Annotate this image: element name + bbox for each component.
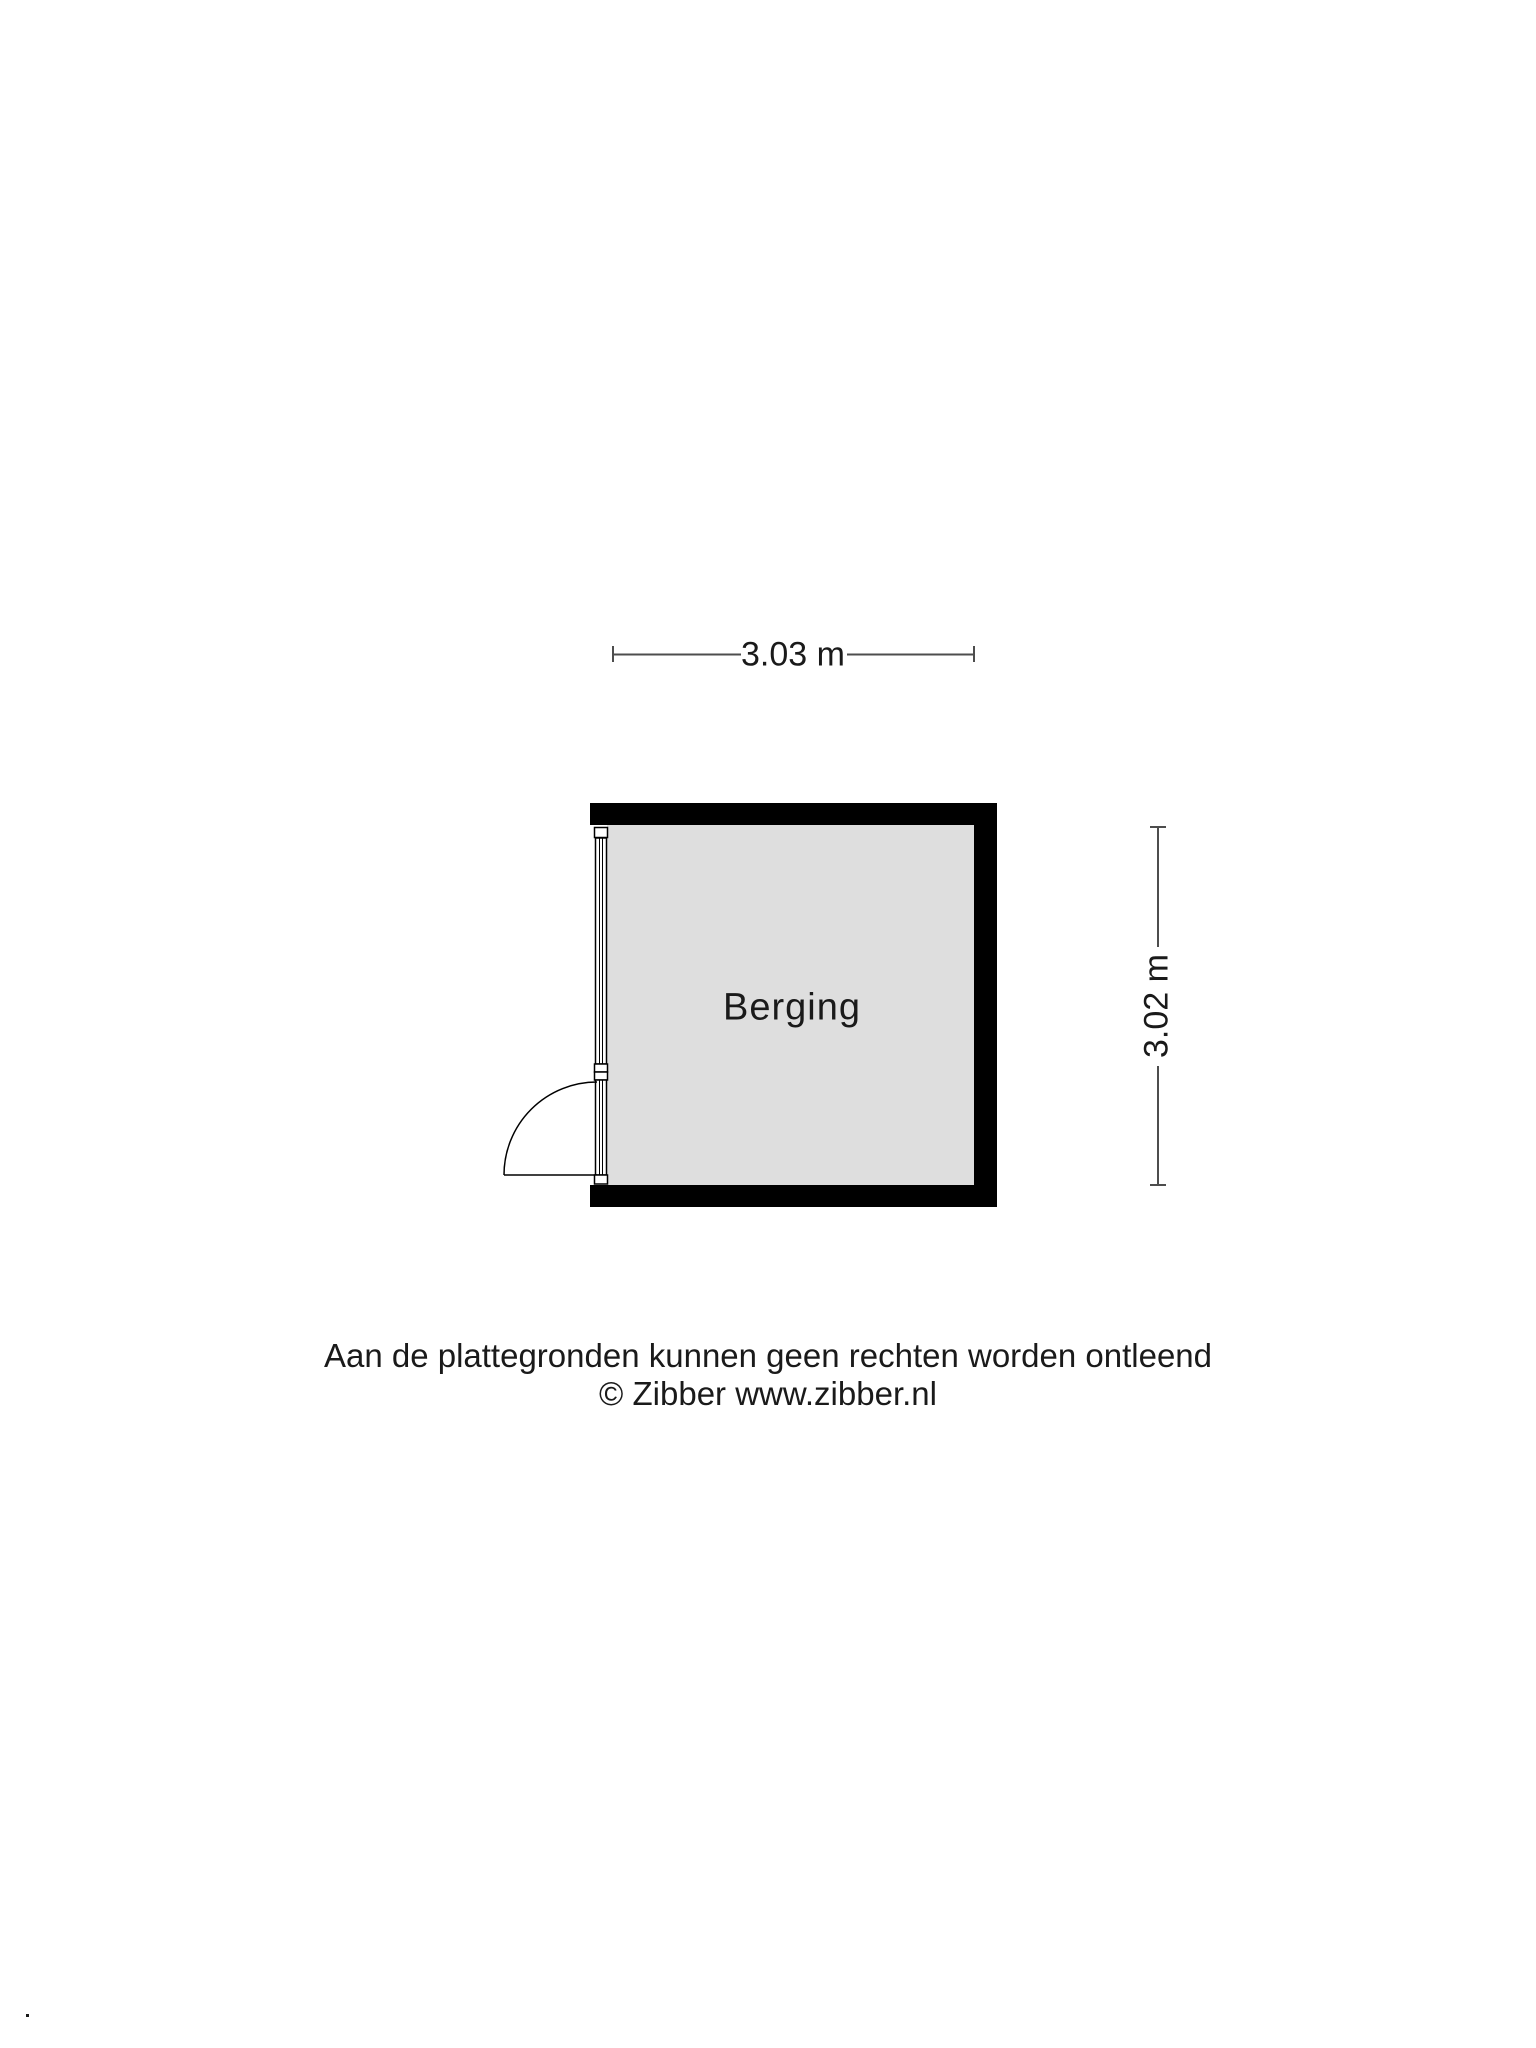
disclaimer-line-2: © Zibber www.zibber.nl [0,1375,1536,1413]
width-dimension-label: 3.03 m [741,636,845,675]
room-name-label: Berging [723,987,861,1030]
bottom-wall [590,1185,997,1207]
height-dimension-label: 3.02 m [1138,954,1177,1058]
frame-cap-top [595,828,608,838]
stray-dot [26,2014,29,2017]
frame-cap-middle-2 [595,1072,608,1080]
window-frame [596,838,607,1064]
top-wall [590,803,997,825]
disclaimer-line-1: Aan de plattegronden kunnen geen rechten… [0,1337,1536,1375]
floorplan-canvas: 3.03 m 3.02 m Berging Aan de plattegrond… [0,0,1536,2048]
frame-cap-middle-1 [595,1064,608,1072]
door-panel [596,1080,607,1175]
door [504,1080,607,1175]
door-swing-arc [504,1082,597,1175]
right-wall [974,803,997,1207]
disclaimer: Aan de plattegronden kunnen geen rechten… [0,1337,1536,1413]
frame-cap-bottom [595,1175,608,1184]
left-frame-column [504,828,608,1185]
window [596,838,607,1064]
